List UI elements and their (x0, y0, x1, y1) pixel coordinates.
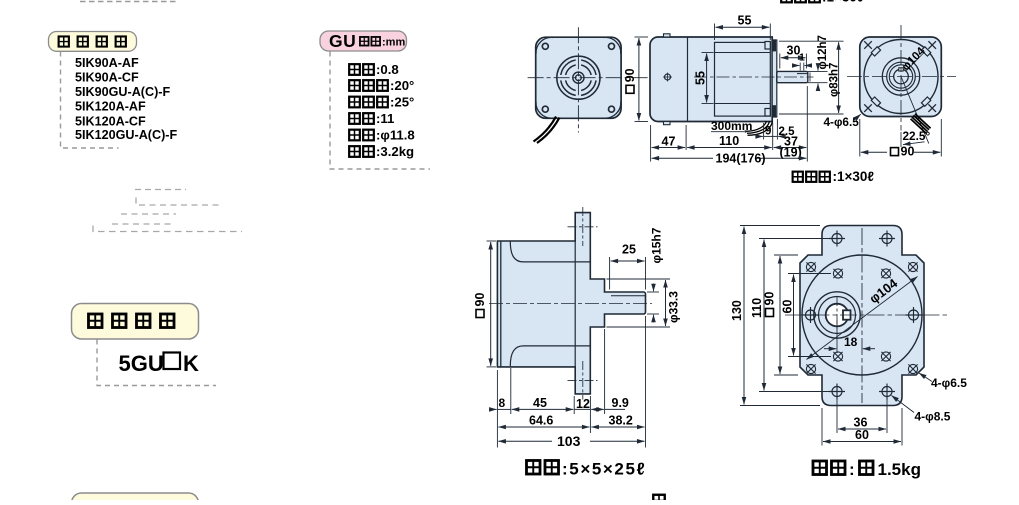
svg-text:φ33.3: φ33.3 (667, 291, 681, 323)
svg-text::1×30ℓ: :1×30ℓ (833, 169, 875, 184)
svg-text:18: 18 (844, 335, 858, 349)
svg-text:5IK120GU-A(C)-F: 5IK120GU-A(C)-F (75, 128, 177, 142)
svg-text::25°: :25° (390, 95, 414, 110)
svg-text:90: 90 (762, 292, 776, 306)
svg-text:64.6: 64.6 (529, 414, 553, 428)
svg-text:90: 90 (623, 68, 637, 82)
svg-text::11: :11 (376, 111, 394, 126)
svg-text::3.2kg: :3.2kg (376, 144, 414, 159)
svg-text:55: 55 (738, 14, 752, 28)
svg-text:5GU: 5GU (119, 351, 164, 376)
svg-text:90: 90 (473, 293, 487, 307)
svg-text:φ83h7: φ83h7 (829, 63, 841, 97)
svg-text::20°: :20° (390, 78, 414, 93)
svg-text:5IK120A-CF: 5IK120A-CF (75, 115, 146, 129)
svg-text:GU: GU (329, 31, 356, 51)
svg-text:9: 9 (765, 126, 771, 138)
svg-text:55: 55 (694, 71, 708, 85)
svg-text:110: 110 (719, 134, 739, 148)
svg-text:22.5°: 22.5° (903, 129, 931, 143)
svg-text:103: 103 (557, 433, 581, 449)
svg-text:90: 90 (901, 145, 915, 159)
svg-text:60: 60 (855, 428, 869, 442)
svg-text:1.5kg: 1.5kg (878, 460, 921, 479)
svg-text::: : (849, 460, 855, 479)
svg-text::φ11.8: :φ11.8 (376, 128, 415, 143)
svg-text:5IK120A-AF: 5IK120A-AF (75, 100, 146, 114)
svg-text::mm: :mm (382, 37, 405, 49)
svg-text::1×30ℓ: :1×30ℓ (822, 0, 864, 5)
svg-text:9.9: 9.9 (612, 396, 629, 410)
svg-text:1: 1 (799, 52, 805, 64)
svg-text:5IK90A-AF: 5IK90A-AF (75, 56, 139, 70)
svg-text:8: 8 (499, 396, 506, 410)
svg-text:4-φ8.5: 4-φ8.5 (915, 410, 951, 424)
svg-text:45: 45 (533, 396, 547, 410)
svg-text::5×5×25ℓ: :5×5×25ℓ (562, 460, 646, 479)
svg-text:130: 130 (730, 300, 744, 321)
svg-text:12: 12 (576, 397, 590, 411)
svg-text:(19): (19) (780, 146, 802, 160)
svg-text:4-φ6.5: 4-φ6.5 (824, 115, 860, 129)
svg-text:4-φ6.5: 4-φ6.5 (931, 376, 967, 390)
svg-text:25: 25 (622, 243, 636, 257)
svg-text:60: 60 (781, 300, 795, 314)
svg-text:K: K (183, 351, 199, 376)
svg-text:38.2: 38.2 (609, 414, 633, 428)
svg-text::0.8: :0.8 (376, 62, 399, 77)
svg-text:5IK90A-CF: 5IK90A-CF (75, 71, 139, 85)
svg-text:47: 47 (662, 135, 676, 149)
svg-text:φ12h7: φ12h7 (817, 35, 829, 69)
svg-text:φ15h7: φ15h7 (650, 227, 664, 263)
svg-text:194(176): 194(176) (716, 152, 766, 166)
svg-text:5IK90GU-A(C)-F: 5IK90GU-A(C)-F (75, 85, 170, 99)
